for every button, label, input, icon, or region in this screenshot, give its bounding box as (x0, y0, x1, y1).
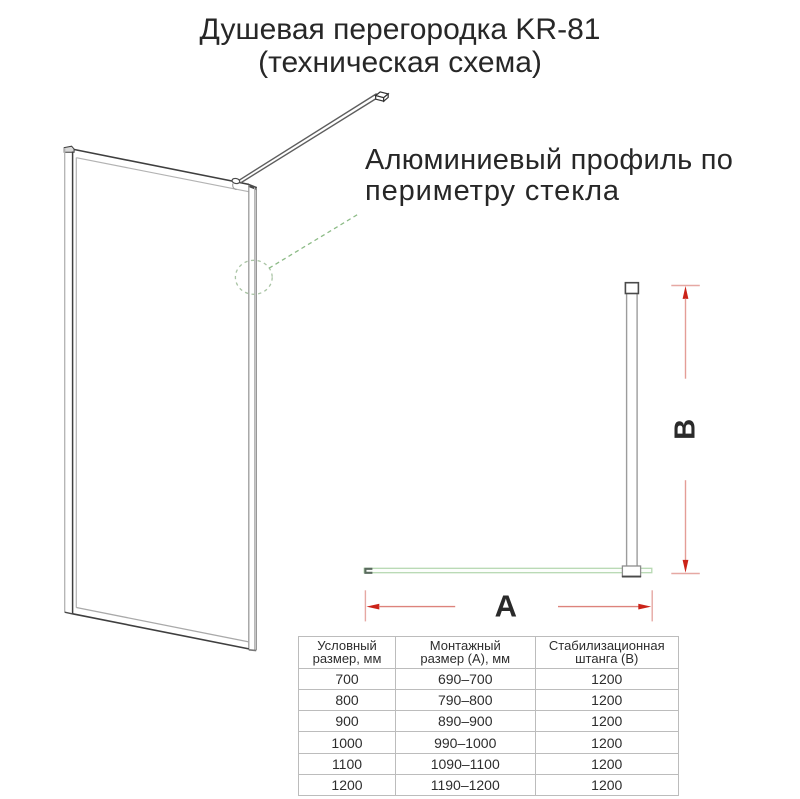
svg-text:В: В (670, 419, 702, 440)
svg-text:А: А (495, 588, 517, 623)
